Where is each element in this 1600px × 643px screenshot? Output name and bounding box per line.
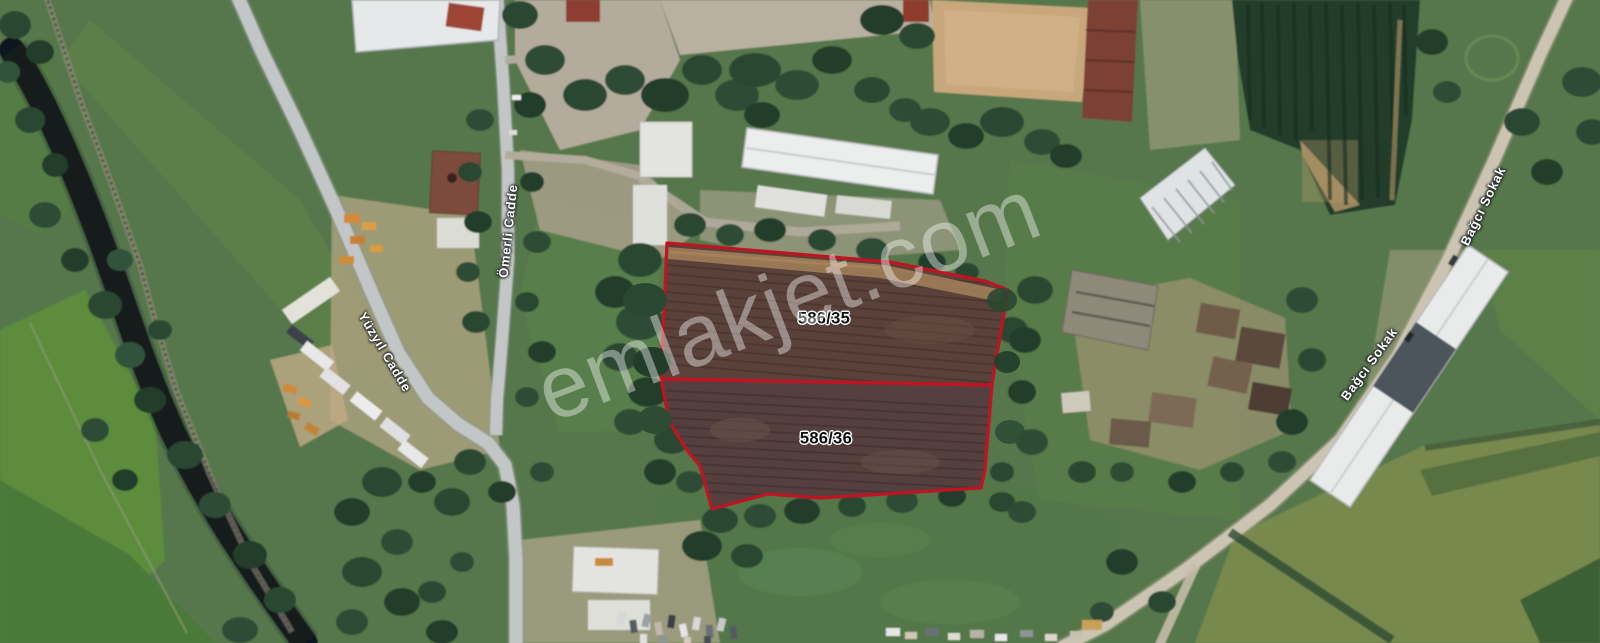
map-canvas	[0, 0, 1600, 643]
building-red-roof-3	[903, 0, 929, 22]
building-red-roof-2	[566, 0, 600, 22]
satellite-map[interactable]: 586/35 586/36 Ömerli Cadde Yüzyıl Cadde …	[0, 0, 1600, 643]
building-brown-roof	[429, 151, 480, 215]
building-small-white-3	[633, 185, 667, 245]
building-small-white-2	[640, 122, 692, 177]
building-red-roof-1	[446, 3, 485, 32]
building-bottom-shed-1	[572, 547, 659, 595]
